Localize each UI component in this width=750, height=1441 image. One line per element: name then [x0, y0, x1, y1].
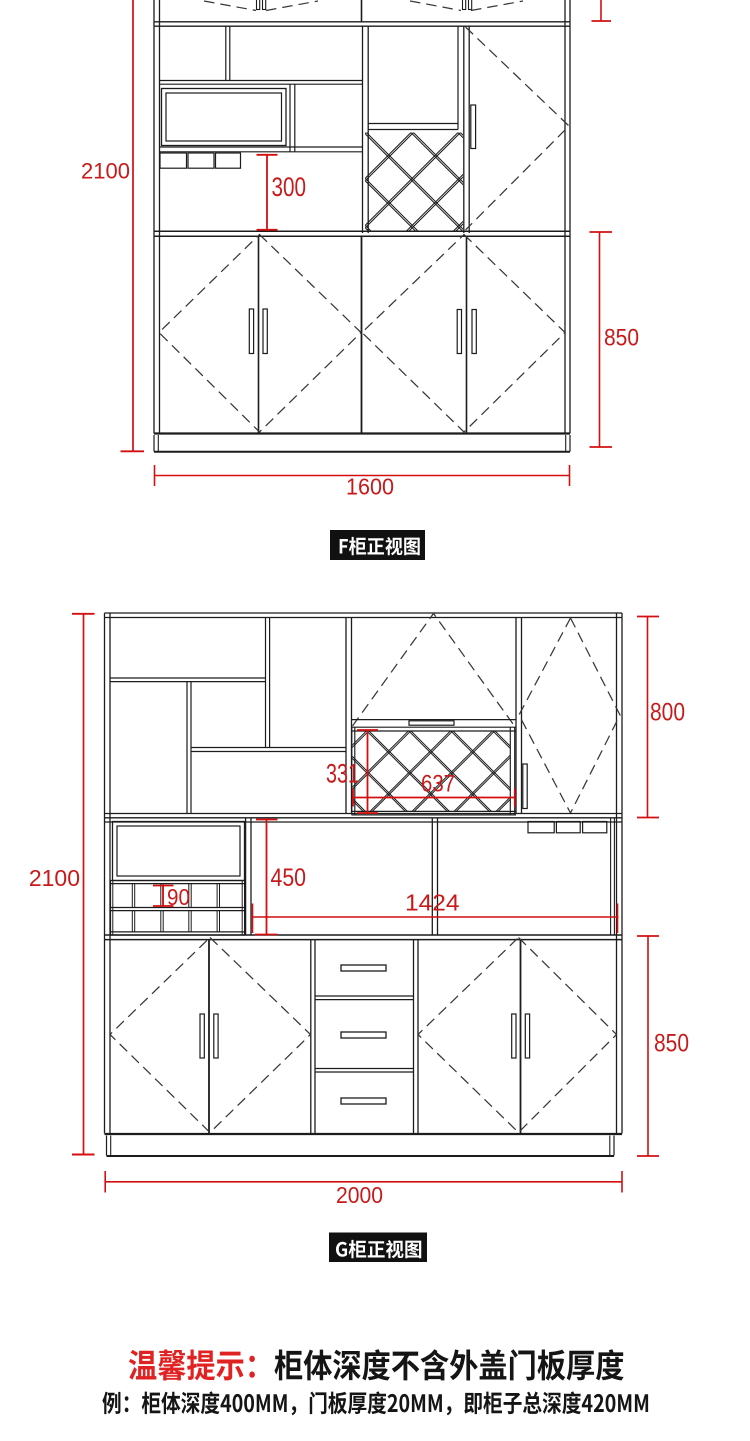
- svg-text:331: 331: [326, 759, 359, 789]
- svg-text:637: 637: [421, 771, 455, 798]
- svg-text:1424: 1424: [405, 890, 460, 916]
- svg-text:1600: 1600: [346, 474, 394, 500]
- svg-text:800: 800: [650, 699, 685, 727]
- svg-text:300: 300: [272, 172, 307, 202]
- svg-text:2000: 2000: [336, 1182, 383, 1208]
- svg-text:850: 850: [654, 1030, 689, 1058]
- svg-text:90: 90: [167, 884, 190, 910]
- svg-text:850: 850: [604, 325, 639, 352]
- svg-text:2100: 2100: [29, 865, 80, 891]
- svg-text:2100: 2100: [81, 159, 130, 184]
- svg-text:450: 450: [271, 864, 307, 892]
